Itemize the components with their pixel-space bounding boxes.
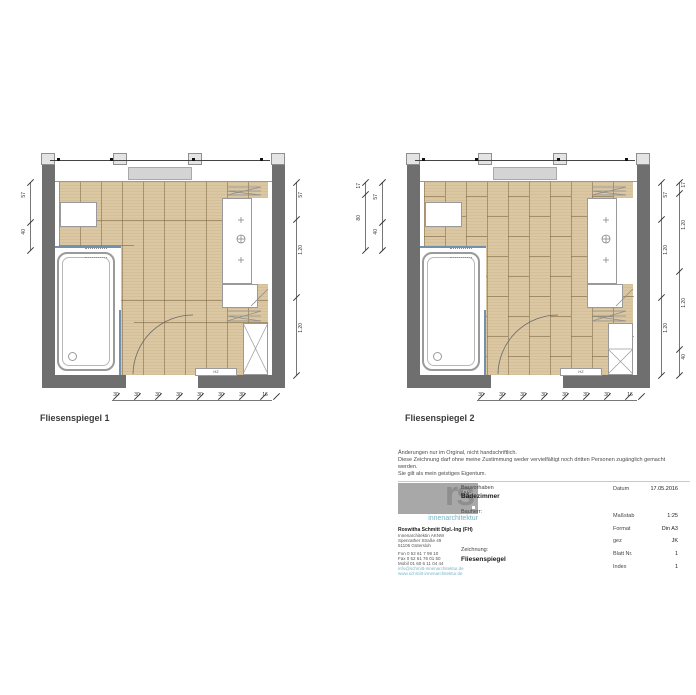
dim-chain-bottom: 30 30 30 30 30 30 30 16: [112, 400, 272, 401]
dim-label: 16: [623, 393, 637, 398]
dim-label: 30: [579, 393, 593, 398]
dim-label: 40: [22, 229, 27, 235]
bathtub-drain: [433, 352, 442, 361]
tick: [293, 179, 300, 186]
dim-chain-right-outer: 17 1.20 1.20 40: [679, 182, 680, 375]
tick: [362, 179, 369, 186]
bauherr-label: Bauherr:: [461, 509, 482, 515]
dim-chain-left-outer: 17 80: [365, 182, 366, 250]
bathtub-inner-rim: [427, 257, 475, 366]
tick: [27, 247, 34, 254]
tick: [658, 216, 665, 223]
dim-label: 80: [357, 215, 362, 221]
tile-joint: [550, 276, 571, 277]
tile-joint: [508, 356, 529, 357]
pillar: [406, 153, 420, 165]
tick: [273, 393, 280, 400]
dim-label: 30: [193, 393, 207, 398]
note-line: Änderungen nur im Orginal, nicht handsch…: [398, 450, 665, 457]
tile-joint: [487, 256, 508, 257]
wall-left: [42, 164, 55, 388]
wall-bottom-left-segment: [42, 375, 126, 388]
dim-label: 30: [558, 393, 572, 398]
shower-marks: [450, 248, 472, 258]
tile-joint: [508, 276, 529, 277]
tile-joint: [529, 336, 550, 337]
note-line: Sie gilt als mein geistiges Eigentum.: [398, 471, 665, 478]
tile-joint: [487, 296, 508, 297]
bathtub: [57, 252, 115, 371]
tick: [379, 247, 386, 254]
bathtub-drain: [68, 352, 77, 361]
shower-glass-line-vertical: [119, 310, 121, 375]
dim-chain-left-inner: 57 40: [382, 182, 383, 250]
meta-value-massstab: 1:25: [618, 513, 678, 519]
tile-joint: [508, 196, 529, 197]
drawing-sheet: HZ: [0, 0, 696, 695]
tick: [293, 216, 300, 223]
dim-chain-right: 57 1.20 1.20: [296, 182, 297, 375]
dim-label: 30: [516, 393, 530, 398]
plan-title-1: Fliesenspiegel 1: [40, 413, 110, 423]
wall-bottom-right-segment: [198, 375, 285, 388]
dimension-marker: [110, 158, 113, 161]
dim-chain-right-inner: 57 1.20 1.20: [661, 182, 662, 375]
tick: [293, 372, 300, 379]
tick: [362, 191, 369, 198]
side-cabinet: [222, 284, 258, 308]
meta-value-datum: 17.05.2016: [618, 486, 678, 492]
zeichnung-label: Zeichnung:: [461, 547, 488, 553]
dim-label: 1.20: [299, 245, 304, 255]
tile-joint: [424, 196, 445, 197]
dim-label: 17: [682, 182, 687, 188]
tick: [362, 247, 369, 254]
top-dimension-line: [50, 160, 270, 161]
dim-label: 30: [495, 393, 509, 398]
vanity-cabinet: [222, 198, 252, 284]
tick: [658, 179, 665, 186]
dim-label: 30: [235, 393, 249, 398]
meta-value-blattnr: 1: [618, 551, 678, 557]
tile-joint: [508, 316, 529, 317]
tick: [676, 190, 683, 197]
dim-label: 30: [537, 393, 551, 398]
tile-joint: [592, 316, 613, 317]
bathtub-inner-rim: [62, 257, 110, 366]
furniture-box: [425, 202, 462, 227]
vanity-cabinet: [587, 198, 617, 284]
wall-bottom-left-segment: [407, 375, 491, 388]
dim-label: 40: [682, 354, 687, 360]
dim-label: 57: [22, 192, 27, 198]
pillar: [188, 153, 202, 165]
tile-joint: [571, 336, 592, 337]
plan-title-2: Fliesenspiegel 2: [405, 413, 475, 423]
dim-chain-bottom: 30 30 30 30 30 30 30 16: [477, 400, 637, 401]
pillar: [636, 153, 650, 165]
dimension-marker: [422, 158, 425, 161]
pillar: [41, 153, 55, 165]
dimension-marker: [260, 158, 263, 161]
side-cabinet: [587, 284, 623, 308]
dim-label: 30: [172, 393, 186, 398]
dim-label: 57: [664, 192, 669, 198]
dim-label: 30: [109, 393, 123, 398]
shower-marks: [85, 248, 107, 258]
note-line: Diese Zeichnung darf ohne meine Zustimmu…: [398, 457, 665, 464]
window-band: [55, 166, 272, 182]
radiator-label: HZ: [213, 369, 218, 374]
floor-plan-2: HZ: [387, 148, 687, 423]
dim-label: 30: [474, 393, 488, 398]
tile-joint: [550, 356, 571, 357]
dimension-marker: [192, 158, 195, 161]
dim-chain-left: 57 40: [30, 182, 31, 250]
room-interior: HZ: [420, 182, 637, 375]
tick: [379, 219, 386, 226]
tile-joint: [550, 196, 571, 197]
bathtub: [422, 252, 480, 371]
tick: [676, 346, 683, 353]
zeichnung-value: Fliesenspiegel: [461, 556, 506, 563]
tick: [676, 372, 683, 379]
dim-label: 1.20: [299, 323, 304, 333]
floor-plan-1: HZ: [22, 148, 322, 423]
title-block: Änderungen nur im Orginal, nicht handsch…: [398, 450, 690, 590]
furniture-box: [60, 202, 97, 227]
dim-label: 30: [130, 393, 144, 398]
dim-label: 17: [357, 183, 362, 189]
contact-website: www.schmitt-innenarchitektur.de: [398, 571, 473, 576]
dim-label: 30: [600, 393, 614, 398]
pillar: [478, 153, 492, 165]
window-glazing: [493, 167, 557, 180]
tile-joint: [466, 196, 487, 197]
radiator-hz: HZ: [560, 368, 602, 376]
wall-left: [407, 164, 420, 388]
tick: [27, 219, 34, 226]
tile-joint: [487, 216, 508, 217]
tick: [379, 179, 386, 186]
dim-label: 16: [258, 393, 272, 398]
room-interior: HZ: [55, 182, 272, 375]
tick: [638, 393, 645, 400]
tile-joint: [529, 296, 550, 297]
tile-joint: [424, 236, 445, 237]
tick: [658, 294, 665, 301]
radiator-label: HZ: [578, 369, 583, 374]
tall-cabinet: [608, 323, 633, 375]
window-glazing: [128, 167, 192, 180]
tile-joint: [529, 216, 550, 217]
tall-cabinet: [243, 323, 268, 375]
dimension-marker: [557, 158, 560, 161]
copyright-notes: Änderungen nur im Orginal, nicht handsch…: [398, 450, 665, 478]
wall-bottom-right-segment: [563, 375, 650, 388]
dim-label: 1.20: [682, 298, 687, 308]
dim-label: 57: [299, 192, 304, 198]
radiator-hz: HZ: [195, 368, 237, 376]
meta-value-gez: JK: [618, 538, 678, 544]
wall-right: [637, 164, 650, 388]
tick: [658, 372, 665, 379]
note-line: werden.: [398, 464, 665, 471]
dim-label: 30: [151, 393, 165, 398]
tile-joint: [550, 236, 571, 237]
dim-label: 1.20: [664, 323, 669, 333]
tick: [27, 179, 34, 186]
meta-value-index: 1: [618, 564, 678, 570]
top-dimension-line: [415, 160, 635, 161]
tile-joint: [592, 196, 613, 197]
tile-joint: [550, 316, 571, 317]
dimension-marker: [475, 158, 478, 161]
dim-label: 1.20: [682, 220, 687, 230]
tick: [676, 268, 683, 275]
dimension-marker: [625, 158, 628, 161]
dim-label: 1.20: [664, 245, 669, 255]
bauvorhaben-value: Badezimmer: [461, 493, 500, 500]
tile-joint: [487, 336, 508, 337]
tile-joint: [466, 236, 487, 237]
logo-subtitle: innenarchitektur: [398, 515, 478, 522]
shower-glass-line-vertical: [484, 310, 486, 375]
title-block-rule: [398, 481, 690, 482]
tile-joint: [508, 236, 529, 237]
meta-value-format: Din A3: [618, 526, 678, 532]
tile-joint: [529, 256, 550, 257]
wall-right: [272, 164, 285, 388]
dim-label: 40: [374, 229, 379, 235]
tick: [293, 294, 300, 301]
pillar: [553, 153, 567, 165]
dimension-marker: [57, 158, 60, 161]
dim-label: 30: [214, 393, 228, 398]
dim-label: 57: [374, 194, 379, 200]
pillar: [271, 153, 285, 165]
pillar: [113, 153, 127, 165]
window-band: [420, 166, 637, 182]
